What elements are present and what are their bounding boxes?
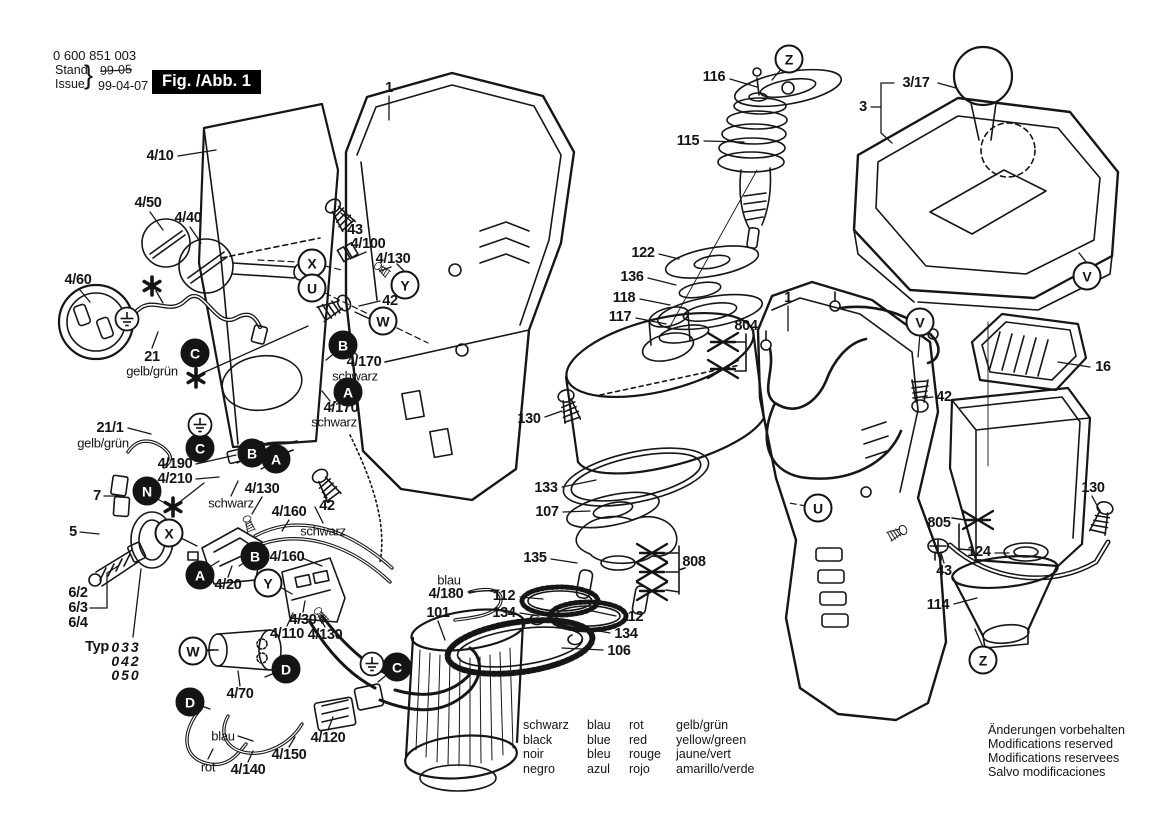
part-label: schwarz — [311, 415, 357, 430]
color-legend: schwarzblacknoirnegroblaubluebleuazulrot… — [523, 718, 755, 776]
legend-term: rot — [629, 718, 676, 733]
part-label: 6/3 — [68, 600, 87, 616]
legend-column: schwarzblacknoirnegro — [523, 718, 587, 776]
part-label: 124 — [967, 544, 990, 560]
part-label: Typ — [85, 639, 109, 655]
part-label: 112 — [493, 588, 516, 604]
part-label: 4/160 — [270, 549, 305, 565]
part-label: 4/110 — [270, 626, 304, 642]
part-label: 4/150 — [272, 747, 307, 763]
legend-term: black — [523, 733, 587, 748]
legend-term: noir — [523, 747, 587, 762]
legend-term: red — [629, 733, 676, 748]
callout-circle-a: A — [186, 561, 215, 590]
part-label: 3 — [859, 99, 867, 115]
part-label: 6/2 — [68, 585, 87, 601]
deleted-part-icon — [961, 509, 995, 531]
asterisk-icon — [140, 274, 164, 298]
part-label: 050 — [111, 667, 140, 683]
part-label: 4/40 — [174, 210, 201, 226]
legend-term: negro — [523, 762, 587, 777]
part-label: 4/10 — [146, 148, 173, 164]
part-label: 112 — [621, 609, 644, 625]
ground-icon — [114, 306, 141, 333]
legend-term: amarillo/verde — [676, 762, 755, 777]
callout-circle-n: N — [133, 477, 162, 506]
legend-term: gelb/grün — [676, 718, 755, 733]
part-label: 122 — [631, 245, 654, 261]
part-label: 118 — [613, 290, 636, 306]
part-label: rot — [201, 760, 215, 775]
callout-circle-d: D — [176, 688, 205, 717]
callout-circle-w: W — [369, 307, 398, 336]
part-label: 43 — [936, 563, 952, 579]
part-label: 805 — [927, 515, 950, 531]
part-label: 42 — [319, 498, 335, 514]
legend-column: rotredrougerojo — [629, 718, 676, 776]
callout-circle-b: B — [241, 542, 270, 571]
part-label: 4/130 — [308, 627, 343, 643]
part-label: 101 — [426, 605, 449, 621]
legend-column: blaubluebleuazul — [587, 718, 629, 776]
part-label: 4/100 — [351, 236, 386, 252]
part-label: 133 — [534, 480, 557, 496]
part-label: 130 — [517, 411, 540, 427]
part-label: 4/130 — [245, 481, 280, 497]
stand-label: Stand — [55, 63, 88, 77]
part-label: 4/130 — [376, 251, 411, 267]
part-label: blau — [211, 729, 234, 744]
legend-term: blue — [587, 733, 629, 748]
part-label: 135 — [523, 550, 546, 566]
brace-glyph: } — [84, 60, 93, 91]
part-label: 4/20 — [214, 577, 241, 593]
part-label: 117 — [609, 309, 632, 325]
callout-circle-z: Z — [969, 646, 998, 675]
part-label: 16 — [1095, 359, 1111, 375]
callout-circle-w: W — [179, 637, 208, 666]
part-label: 6/4 — [68, 615, 87, 631]
modification-note: Salvo modificaciones — [988, 765, 1125, 779]
deleted-part-icon — [706, 358, 740, 380]
callout-circle-x: X — [155, 519, 184, 548]
part-label: 4/70 — [226, 686, 253, 702]
legend-term: rouge — [629, 747, 676, 762]
callout-circle-u: U — [298, 274, 327, 303]
label-layer: 14/104/504/40434/1004/130424/6021gelb/gr… — [0, 0, 1168, 826]
asterisk-icon — [184, 366, 208, 390]
part-label: 4/190 — [158, 456, 193, 472]
deleted-part-icon — [706, 331, 740, 353]
part-label: 4/60 — [64, 272, 91, 288]
part-label: 115 — [677, 133, 700, 149]
document-part-number: 0 600 851 003 — [53, 48, 136, 63]
part-label: schwarz — [208, 496, 254, 511]
part-label: schwarz — [300, 524, 346, 539]
legend-column: gelb/grünyellow/greenjaune/vertamarillo/… — [676, 718, 755, 776]
part-label: 136 — [620, 269, 643, 285]
callout-circle-a: A — [334, 378, 363, 407]
part-label: 114 — [927, 597, 950, 613]
callout-circle-v: V — [1073, 262, 1102, 291]
callout-circle-z: Z — [775, 45, 804, 74]
legend-term: schwarz — [523, 718, 587, 733]
modification-note: Modifications reservees — [988, 751, 1125, 765]
part-label: 4/50 — [134, 195, 161, 211]
part-label: 4/180 — [429, 586, 464, 602]
part-label: 4/120 — [311, 730, 346, 746]
callout-circle-u: U — [804, 494, 833, 523]
part-label: 134 — [614, 626, 637, 642]
legend-term: rojo — [629, 762, 676, 777]
superseded-date: 99-05 — [100, 62, 133, 78]
callout-circle-c: C — [383, 653, 412, 682]
part-label: 1 — [784, 290, 792, 306]
part-label: 808 — [682, 554, 705, 570]
modification-notes: Änderungen vorbehaltenModifications rese… — [988, 723, 1125, 779]
part-label: 4/210 — [158, 471, 193, 487]
part-label: 3/17 — [902, 75, 929, 91]
callout-circle-a: A — [262, 445, 291, 474]
callout-circle-c: C — [181, 339, 210, 368]
part-label: 5 — [69, 524, 77, 540]
issue-date: 99-04-07 — [98, 79, 148, 93]
callout-circle-y: Y — [254, 569, 283, 598]
modification-note: Änderungen vorbehalten — [988, 723, 1125, 737]
part-label: 21/1 — [96, 420, 123, 436]
exploded-parts-diagram: 14/104/504/40434/1004/130424/6021gelb/gr… — [0, 0, 1168, 826]
part-label: 134 — [492, 605, 515, 621]
callout-circle-d: D — [272, 655, 301, 684]
ground-icon — [187, 412, 214, 439]
legend-term: jaune/vert — [676, 747, 755, 762]
callout-circle-b: B — [329, 331, 358, 360]
part-label: 4/140 — [231, 762, 266, 778]
deleted-part-icon — [635, 580, 669, 602]
part-label: 107 — [535, 504, 558, 520]
callout-circle-v: V — [906, 308, 935, 337]
part-label: gelb/grün — [77, 436, 129, 451]
part-label: 130 — [1081, 480, 1104, 496]
ground-icon — [359, 651, 386, 678]
part-label: 42 — [936, 389, 952, 405]
part-label: 106 — [607, 643, 630, 659]
callout-circle-y: Y — [391, 271, 420, 300]
part-label: 7 — [93, 488, 101, 504]
modification-note: Modifications reserved — [988, 737, 1125, 751]
legend-term: blau — [587, 718, 629, 733]
asterisk-icon — [161, 495, 185, 519]
legend-term: bleu — [587, 747, 629, 762]
part-label: 116 — [703, 69, 726, 85]
part-label: 1 — [385, 80, 393, 96]
legend-term: azul — [587, 762, 629, 777]
figure-label: Fig. /Abb. 1 — [152, 70, 261, 94]
issue-label: Issue — [55, 77, 85, 91]
part-label: gelb/grün — [126, 364, 178, 379]
part-label: 4/160 — [272, 504, 307, 520]
legend-term: yellow/green — [676, 733, 755, 748]
